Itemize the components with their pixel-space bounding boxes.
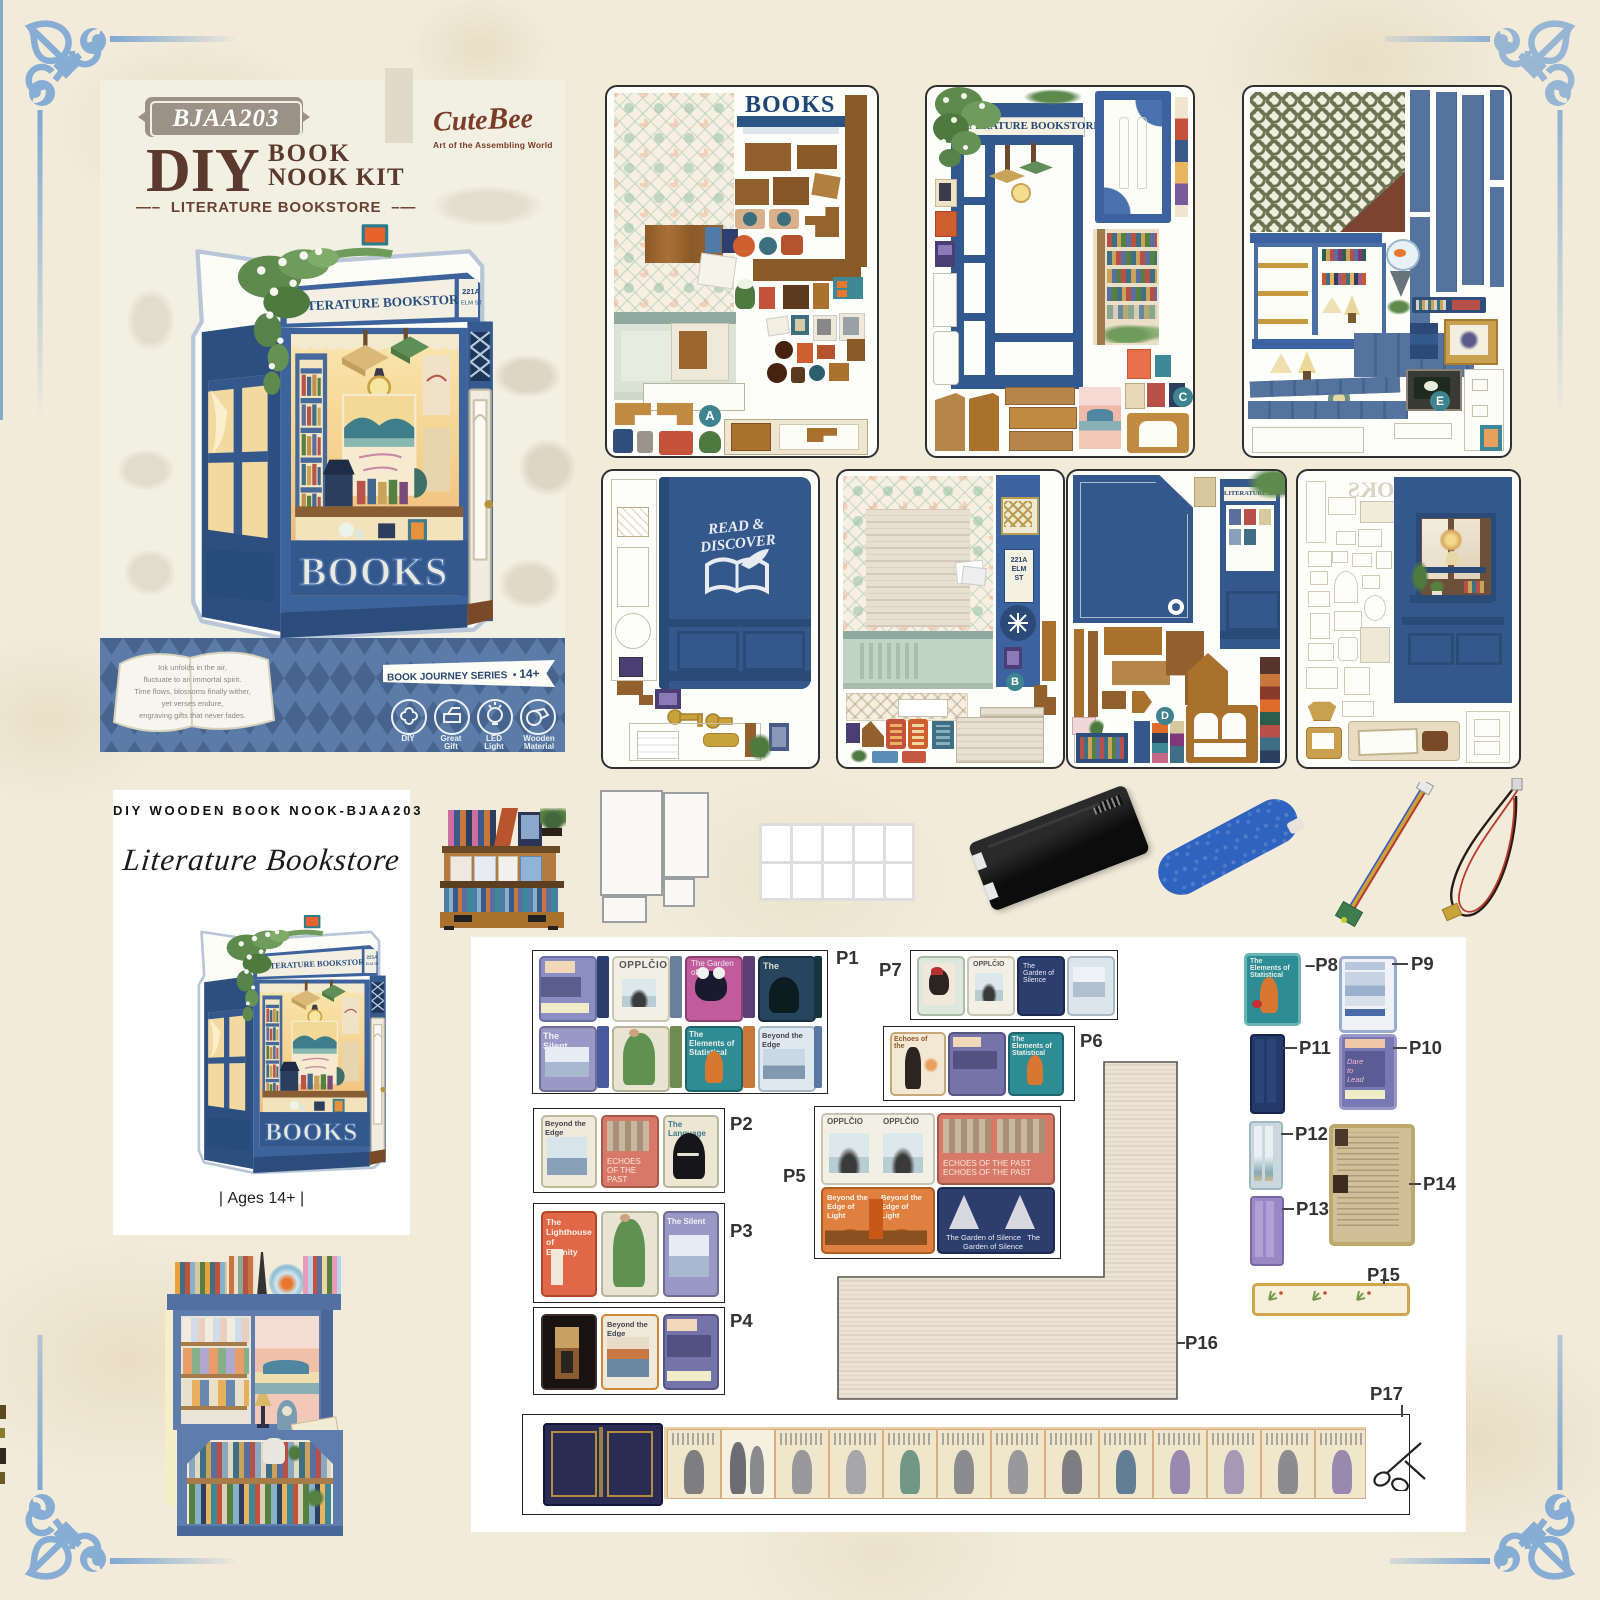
svg-text:BOOKS: BOOKS [300, 549, 449, 594]
svg-text:ELM ST: ELM ST [461, 301, 482, 307]
svg-text:221A: 221A [462, 287, 480, 296]
